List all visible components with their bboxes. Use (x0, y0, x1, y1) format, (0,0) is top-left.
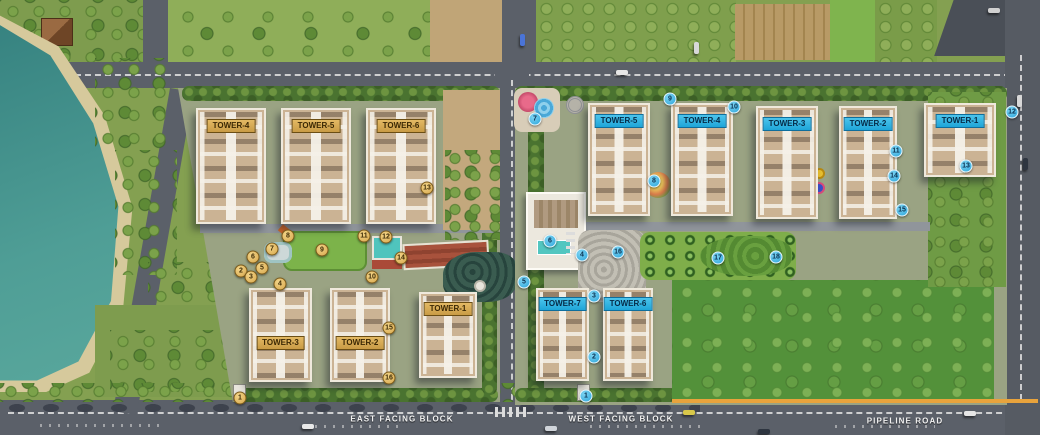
west-tower-label: TOWER-1 (936, 114, 985, 128)
east-tower-label: TOWER-2 (336, 336, 385, 350)
east-amenity-marker-16: 16 (383, 372, 396, 385)
west-amenity-marker-1: 1 (580, 390, 593, 403)
west-tower-tower-7: TOWER-7 (536, 288, 589, 381)
west-tower-label: TOWER-7 (538, 297, 587, 311)
west-amenity-marker-3: 3 (588, 290, 601, 303)
vehicle-6 (683, 410, 695, 415)
west-tower-label: TOWER-2 (844, 117, 893, 131)
west-amenity-marker-13: 13 (960, 160, 973, 173)
east-tower-label: TOWER-3 (256, 336, 305, 350)
west-amenity-marker-14: 14 (888, 170, 901, 183)
west-amenity-marker-17: 17 (712, 252, 725, 265)
east-amenity-marker-8: 8 (282, 230, 295, 243)
east-tower-label: TOWER-1 (424, 302, 473, 316)
east-amenity-marker-9: 9 (316, 244, 329, 257)
west-amenity-marker-8: 8 (648, 175, 661, 188)
west-amenity-marker-10: 10 (728, 101, 741, 114)
west-amenity-marker-15: 15 (896, 204, 909, 217)
vehicle-10 (1023, 158, 1028, 170)
east-amenity-marker-4: 4 (274, 278, 287, 291)
east-amenity-marker-10: 10 (366, 271, 379, 284)
west-tower-tower-6: TOWER-6 (603, 288, 653, 381)
east-tower-label: TOWER-4 (207, 119, 256, 133)
east-tower-label: TOWER-5 (292, 119, 341, 133)
west-amenity-marker-18: 18 (770, 251, 783, 264)
west-tower-label: TOWER-3 (763, 117, 812, 131)
dynamic-layer: TOWER-4TOWER-5TOWER-6TOWER-3TOWER-2TOWER… (0, 0, 1040, 435)
east-amenity-marker-7: 7 (266, 243, 279, 256)
west-tower-label: TOWER-4 (678, 114, 727, 128)
east-tower-tower-4: TOWER-4 (196, 108, 266, 224)
west-amenity-marker-11: 11 (890, 145, 903, 158)
vehicle-11 (988, 8, 1000, 13)
east-amenity-marker-1: 1 (234, 392, 247, 405)
west-tower-tower-3: TOWER-3 (756, 106, 818, 219)
vehicle-2 (520, 34, 525, 46)
west-tower-tower-4: TOWER-4 (671, 103, 733, 216)
east-amenity-marker-11: 11 (358, 230, 371, 243)
vehicle-3 (694, 42, 699, 54)
west-amenity-marker-4: 4 (576, 249, 589, 262)
road-label-east-facing-block: EAST FACING BLOCK (350, 415, 453, 424)
west-tower-tower-5: TOWER-5 (588, 103, 650, 216)
east-tower-tower-2: TOWER-2 (330, 288, 390, 382)
west-amenity-marker-12: 12 (1006, 106, 1019, 119)
west-amenity-marker-16: 16 (612, 246, 625, 259)
west-tower-label: TOWER-5 (595, 114, 644, 128)
east-tower-tower-6: TOWER-6 (366, 108, 436, 224)
site-master-plan: EAST FACING BLOCK WEST FACING BLOCK PIPE… (0, 0, 1040, 435)
road-label-pipeline-road: PIPELINE ROAD (867, 417, 944, 426)
west-amenity-marker-6: 6 (544, 235, 557, 248)
vehicle-1 (616, 70, 628, 75)
vehicle-7 (758, 429, 770, 434)
west-tower-tower-2: TOWER-2 (839, 106, 897, 219)
east-amenity-marker-15: 15 (383, 322, 396, 335)
west-tower-label: TOWER-6 (604, 297, 653, 311)
east-tower-tower-5: TOWER-5 (281, 108, 351, 224)
east-amenity-marker-13: 13 (421, 182, 434, 195)
east-tower-tower-3: TOWER-3 (249, 288, 312, 382)
west-amenity-marker-7: 7 (529, 113, 542, 126)
vehicle-4 (302, 424, 314, 429)
east-amenity-marker-6: 6 (247, 251, 260, 264)
boundary-line-pipeline (672, 399, 1038, 403)
road-label-west-facing-block: WEST FACING BLOCK (569, 415, 674, 424)
east-tower-label: TOWER-6 (377, 119, 426, 133)
east-amenity-marker-14: 14 (395, 252, 408, 265)
vehicle-8 (964, 411, 976, 416)
east-tower-tower-1: TOWER-1 (419, 292, 477, 378)
west-amenity-marker-9: 9 (664, 93, 677, 106)
vehicle-5 (545, 426, 557, 431)
east-amenity-marker-5: 5 (256, 262, 269, 275)
west-amenity-marker-2: 2 (588, 351, 601, 364)
east-amenity-marker-3: 3 (245, 271, 258, 284)
west-amenity-marker-5: 5 (518, 276, 531, 289)
vehicle-9 (1017, 95, 1022, 107)
east-amenity-marker-12: 12 (380, 231, 393, 244)
